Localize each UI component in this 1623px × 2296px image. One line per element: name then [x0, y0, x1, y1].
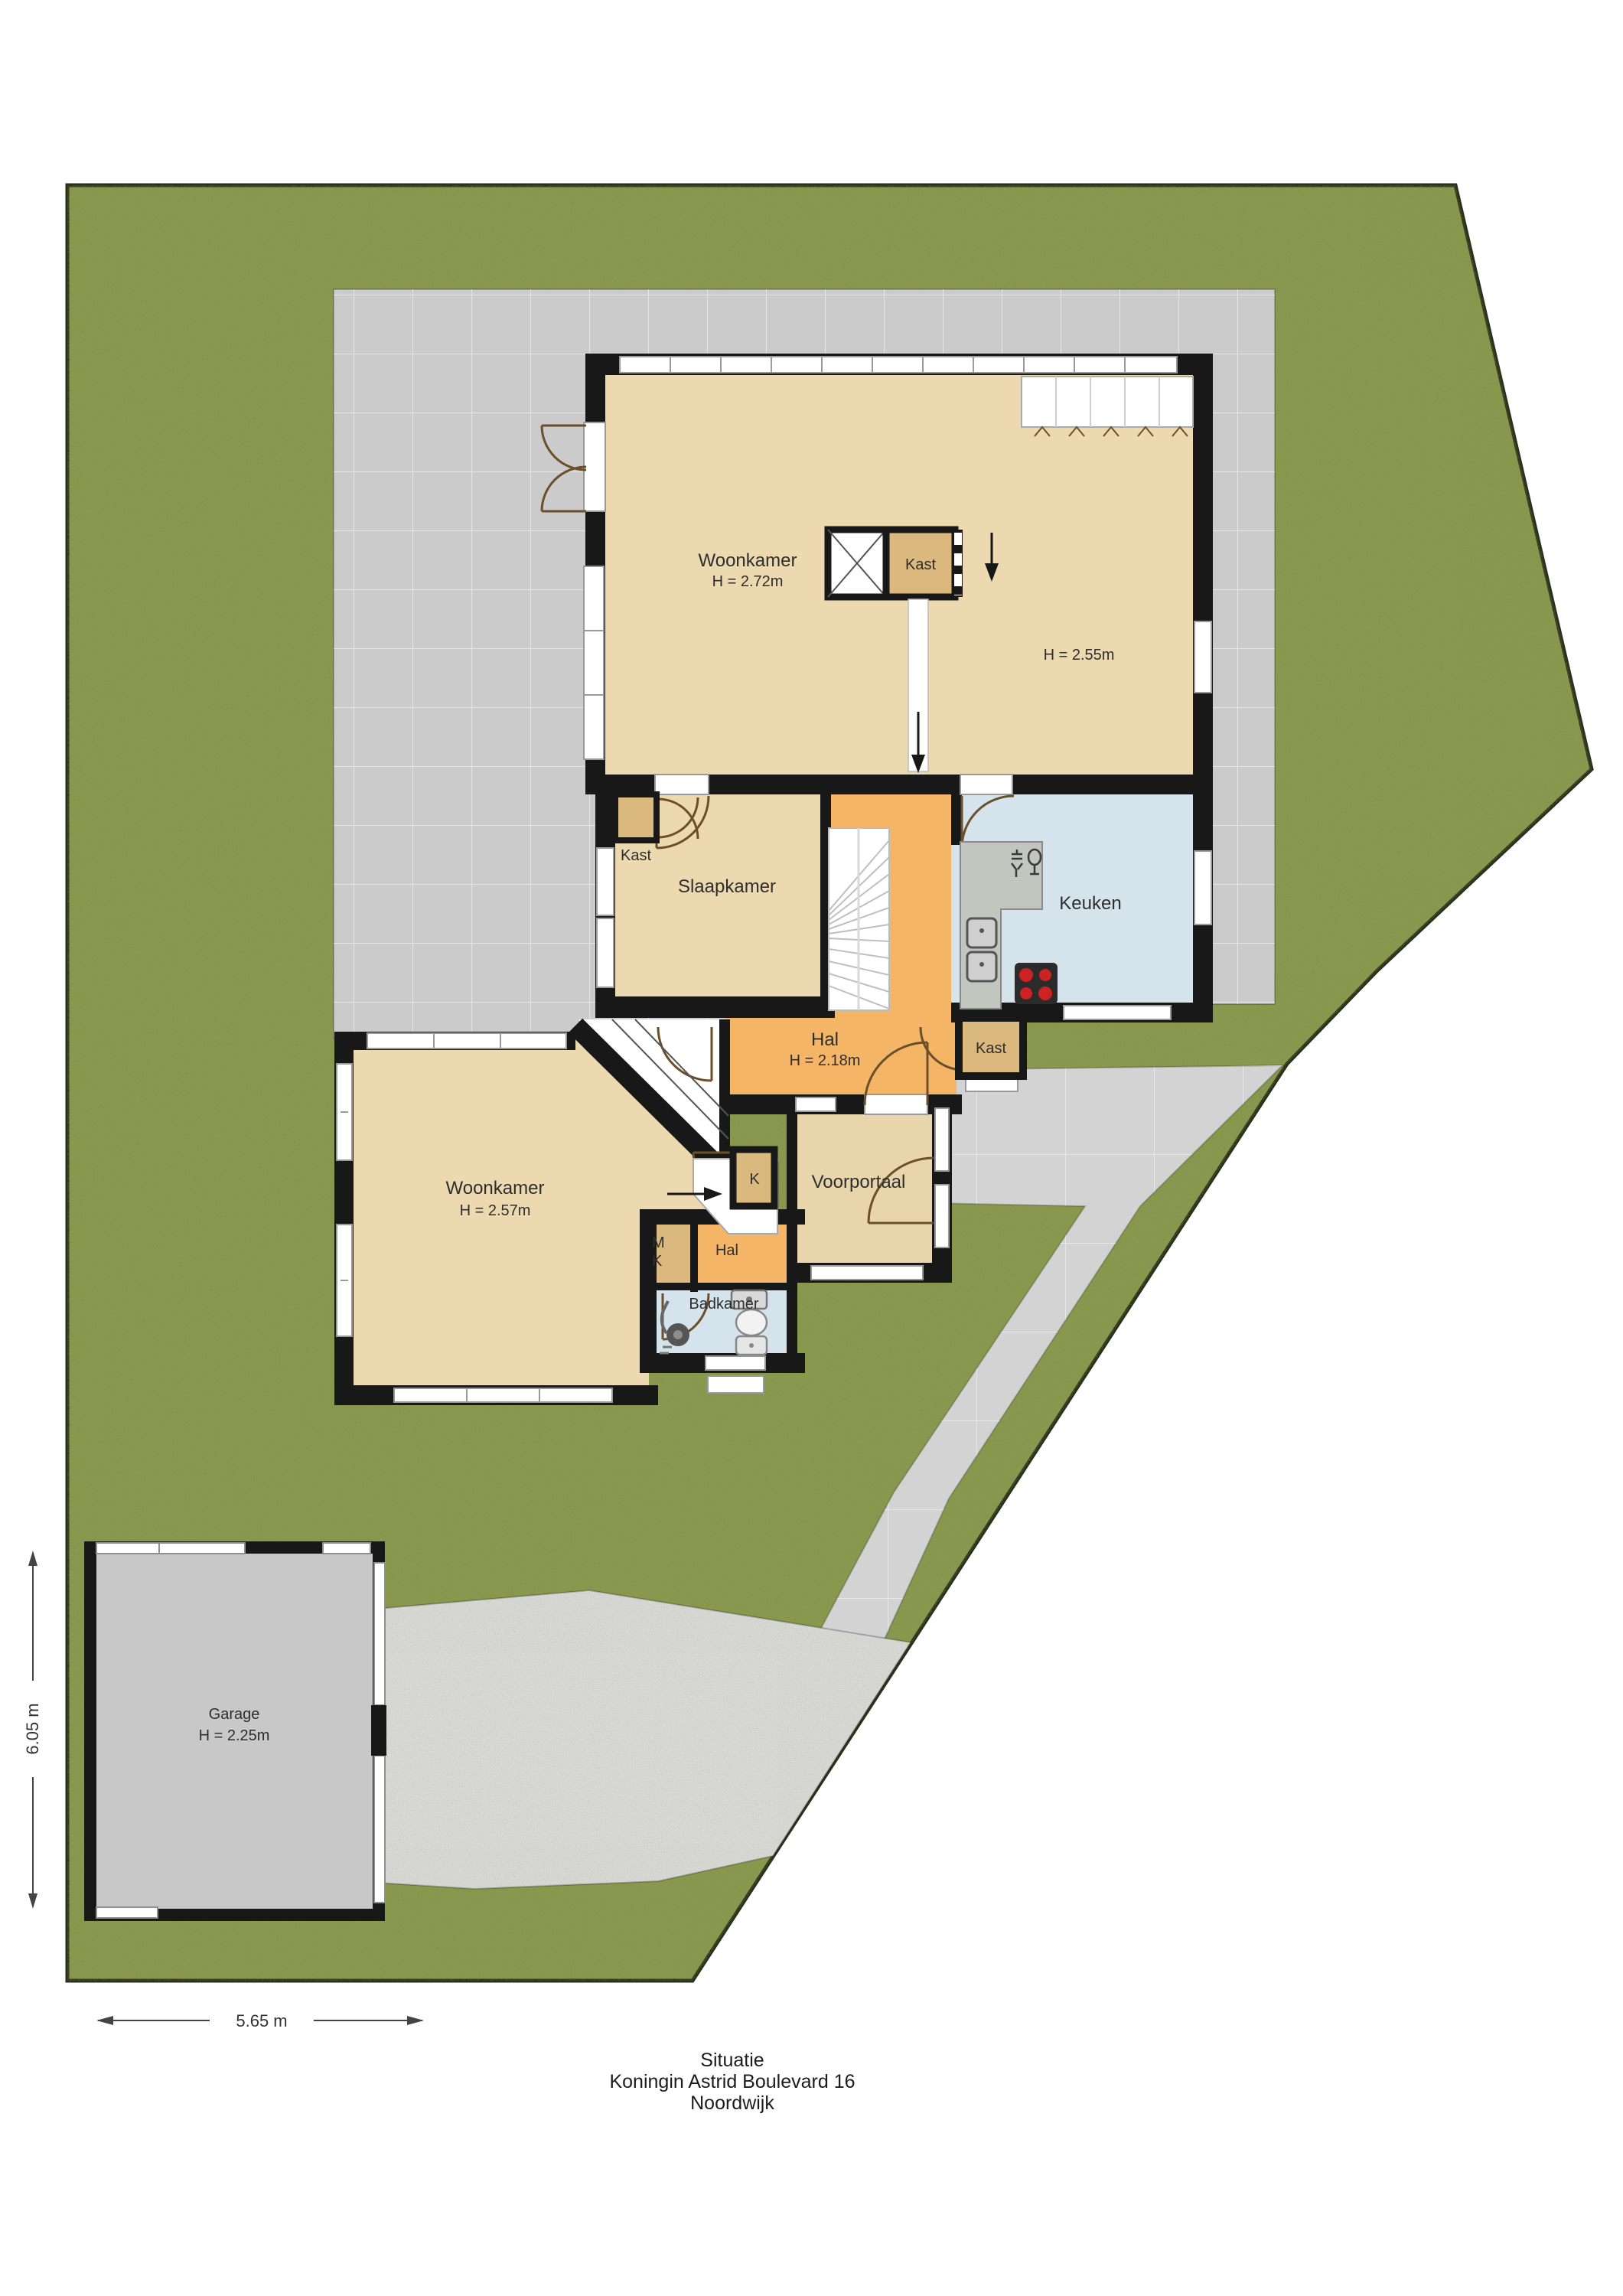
situation-floorplan: Garage H = 2.25m 6.05 m 5.65 m [0, 0, 1623, 2296]
closet-middle [615, 794, 657, 840]
label-hal-south: Hal [715, 1242, 738, 1259]
kitchen-counter-north [1022, 377, 1193, 436]
cooktop-icon [1015, 963, 1058, 1004]
label-slaapkamer: Slaapkamer [678, 876, 776, 897]
label-meterkast-k: K [652, 1253, 663, 1270]
garage-height-label: H = 2.25m [199, 1727, 270, 1744]
garage: Garage H = 2.25m [90, 1543, 386, 1918]
toilet-icon [736, 1309, 767, 1355]
label-woonkamer-south: Woonkamer [446, 1178, 545, 1199]
city-title: Noordwijk [690, 2092, 774, 2114]
label-woonkamer-south-height: H = 2.57m [460, 1202, 531, 1219]
stairs-icon [829, 828, 889, 1010]
label-keuken: Keuken [1059, 893, 1121, 914]
label-woonkamer-north-height: H = 2.72m [712, 573, 784, 590]
label-voorportaal: Voorportaal [812, 1172, 906, 1192]
label-kast-north: Kast [905, 556, 936, 573]
dimension-bottom-label: 5.65 m [236, 2011, 287, 2030]
label-hal-central-height: H = 2.18m [790, 1052, 861, 1069]
label-closet-k: K [749, 1171, 760, 1188]
label-room-east-height: H = 2.55m [1044, 647, 1115, 664]
label-meterkast-m: M [652, 1234, 665, 1251]
garage-label: Garage [209, 1706, 260, 1723]
garage-side-door [371, 1705, 386, 1756]
dimension-left-label: 6.05 m [23, 1703, 42, 1754]
plan-type-title: Situatie [700, 2050, 764, 2071]
label-hal-central: Hal [811, 1029, 839, 1050]
label-kast-south: Kast [976, 1040, 1006, 1057]
label-kast-middle: Kast [621, 847, 651, 864]
label-woonkamer-north: Woonkamer [699, 550, 797, 571]
label-badkamer: Badkamer [689, 1296, 758, 1313]
shaft-box [828, 530, 886, 597]
address-title: Koningin Astrid Boulevard 16 [609, 2071, 855, 2092]
